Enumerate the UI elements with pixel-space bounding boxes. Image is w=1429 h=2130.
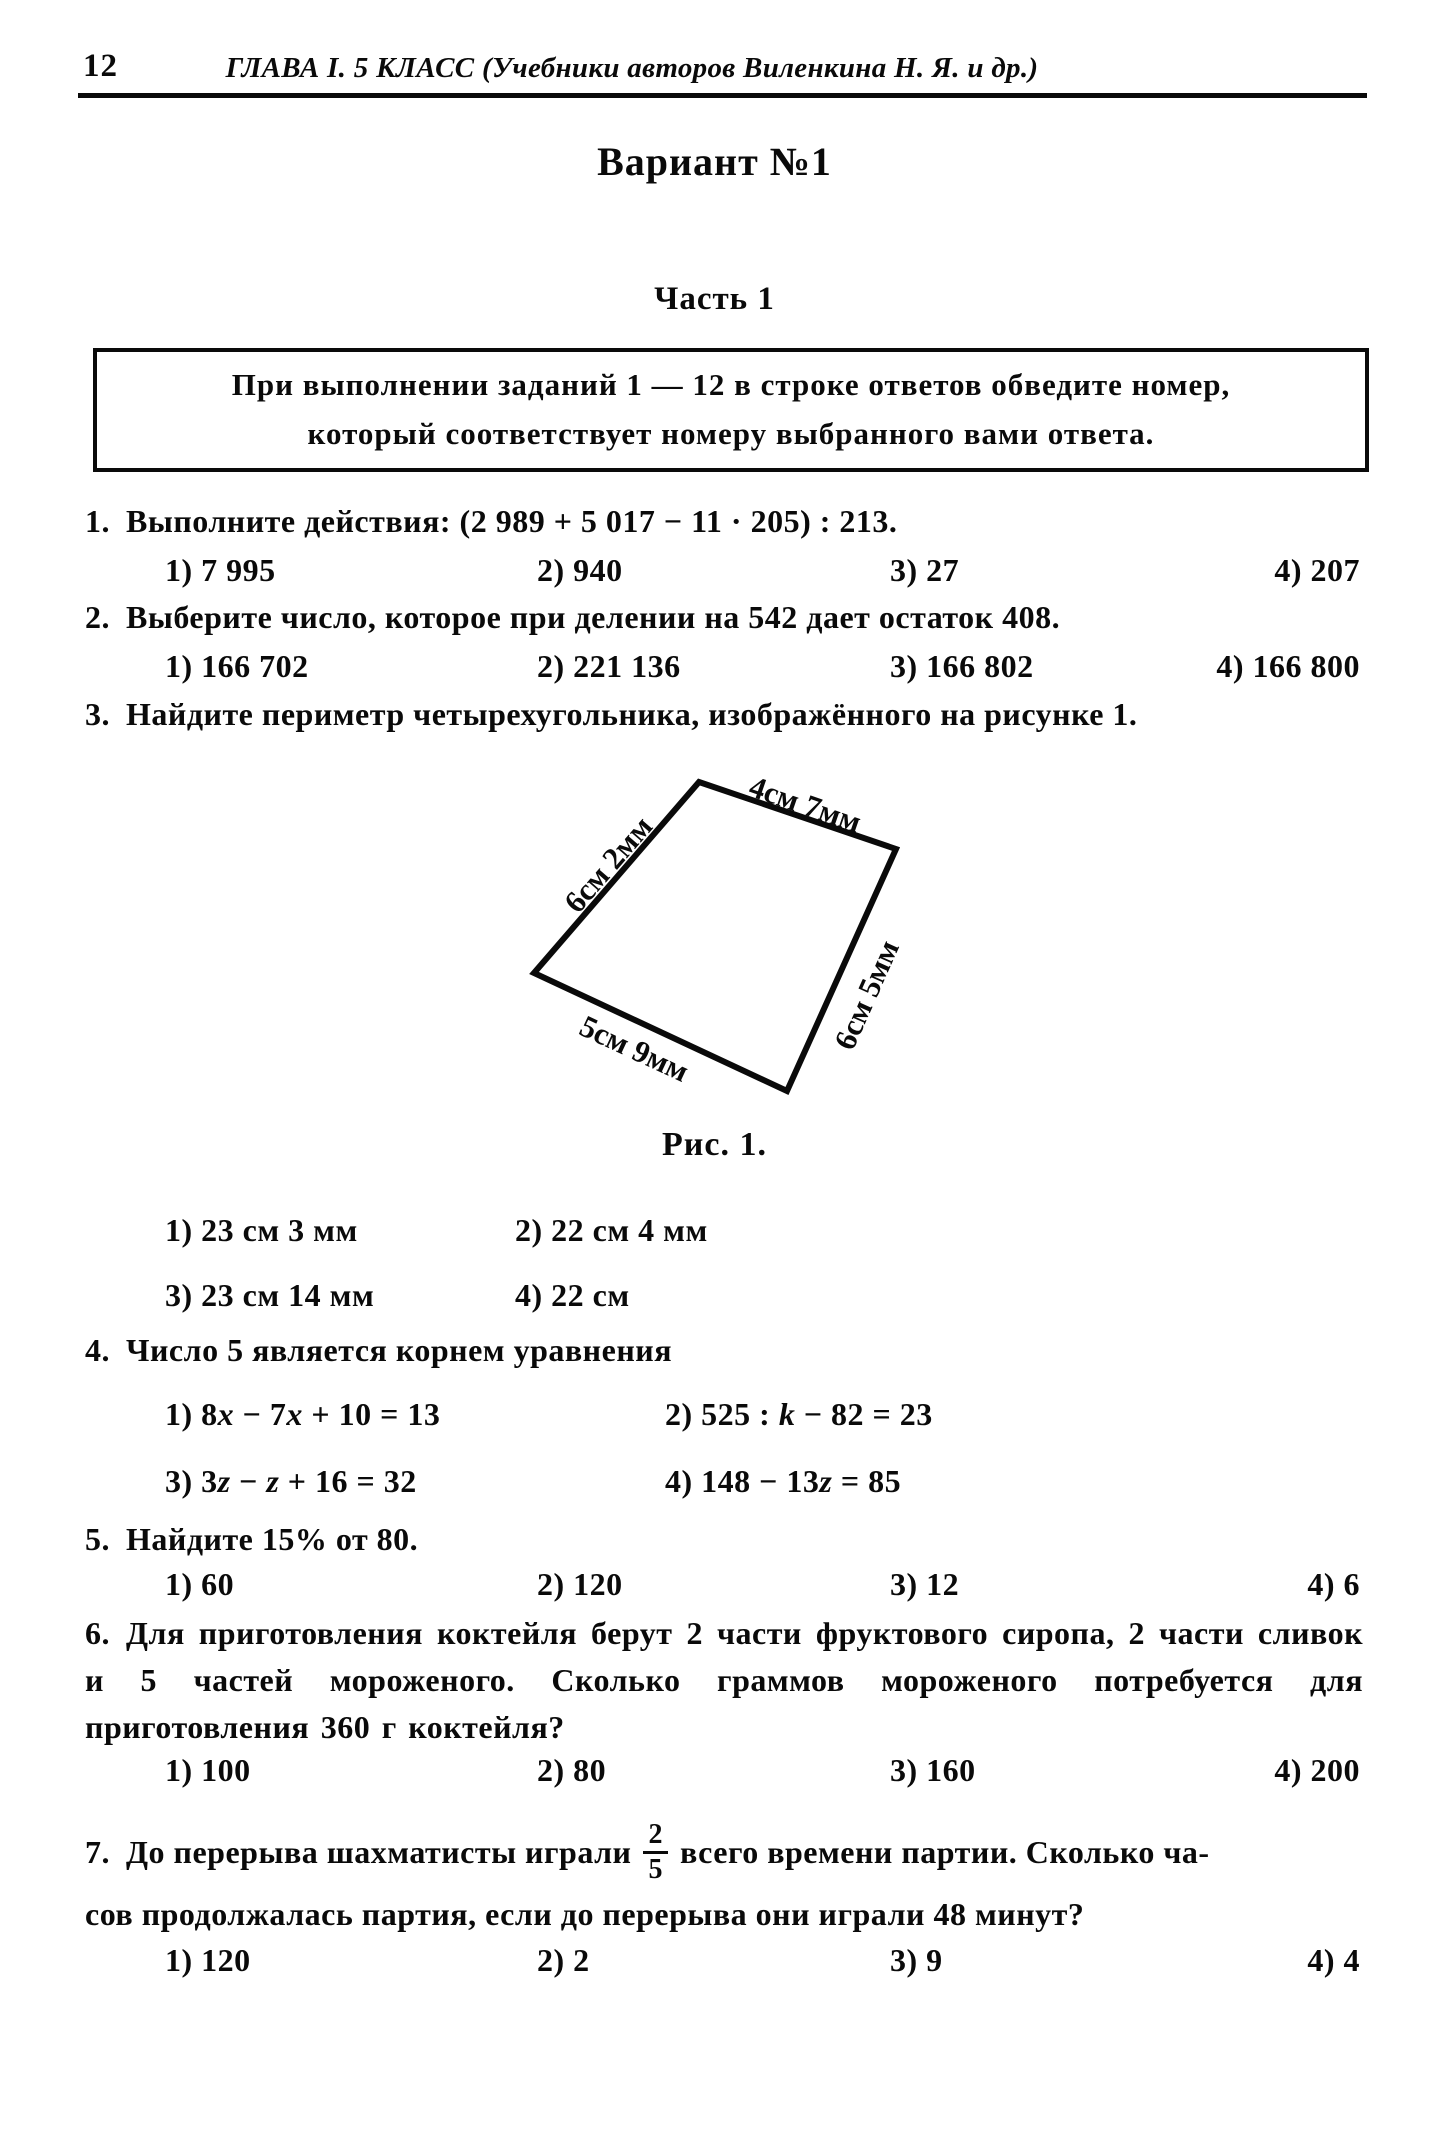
question-5-number: 5. [85, 1521, 110, 1558]
figure-caption: Рис. 1. [0, 1126, 1429, 1164]
answer-option: 3) 9 [890, 1942, 1205, 1979]
instruction-line-1: При выполнении заданий 1 — 12 в строке о… [103, 360, 1359, 409]
answer-option: 2) 221 136 [537, 648, 890, 685]
question-2: 2.Выберите число, которое при делении на… [85, 599, 1369, 636]
figure-quadrilateral: 6см 2мм 4см 7мм 6см 5мм 5см 9мм [430, 726, 1050, 1121]
question-4-text: Число 5 является корнем уравнения [126, 1332, 672, 1368]
answer-option: 4) 4 [1307, 1942, 1360, 1979]
question-5-text: Найдите 15% от 80. [126, 1521, 418, 1557]
question-1: 1.Выполните действия: (2 989 + 5 017 − 1… [85, 503, 1369, 540]
question-2-text: Выберите число, которое при делении на 5… [126, 599, 1060, 635]
question-5-answers: 1) 60 2) 120 3) 12 4) 6 [85, 1566, 1360, 1603]
question-1-answers: 1) 7 995 2) 940 3) 27 4) 207 [85, 552, 1360, 589]
answer-equation: 2) 525 : k − 82 = 23 [665, 1396, 1360, 1433]
answer-option: 2) 80 [537, 1752, 890, 1789]
answer-equation: 4) 148 − 13z = 85 [665, 1463, 1360, 1500]
question-2-number: 2. [85, 599, 110, 636]
question-1-text: Выполните действия: (2 989 + 5 017 − 11 … [126, 503, 897, 539]
question-6-number: 6. [85, 1610, 110, 1657]
answer-equation: 1) 8x − 7x + 10 = 13 [165, 1396, 665, 1433]
question-1-number: 1. [85, 503, 110, 540]
instruction-box: При выполнении заданий 1 — 12 в строке о… [93, 348, 1369, 472]
answer-option: 3) 27 [890, 552, 1205, 589]
question-3-number: 3. [85, 696, 110, 733]
answer-option: 2) 120 [537, 1566, 890, 1603]
answer-option: 4) 6 [1307, 1566, 1360, 1603]
question-4-answers: 1) 8x − 7x + 10 = 13 2) 525 : k − 82 = 2… [85, 1396, 1360, 1500]
side-label-right: 6см 5мм [827, 935, 906, 1055]
answer-option: 1) 60 [165, 1566, 537, 1603]
question-7-text-pre: До перерыва шахматисты играли [126, 1834, 631, 1871]
question-7-text-line2: сов продолжалась партия, если до перерыв… [85, 1896, 1084, 1932]
question-7-text-post: всего времени партии. Сколько ча- [680, 1834, 1210, 1871]
quadrilateral-drawing: 6см 2мм 4см 7мм 6см 5мм 5см 9мм [430, 726, 1050, 1116]
question-6-text: Для приготовления коктейля берут 2 части… [85, 1615, 1363, 1745]
chapter-title: ГЛАВА I. 5 КЛАСС (Учебники авторов Вилен… [175, 52, 1089, 85]
answer-option: 1) 7 995 [165, 552, 537, 589]
answer-option: 4) 207 [1274, 552, 1360, 589]
question-4: 4.Число 5 является корнем уравнения [85, 1332, 1369, 1369]
question-7-line-2: сов продолжалась партия, если до перерыв… [85, 1896, 1369, 1933]
question-3-answers: 1) 23 см 3 мм 2) 22 см 4 мм 3) 23 см 14 … [85, 1212, 1360, 1314]
instruction-line-2: который соответствует номеру выбранного … [103, 409, 1359, 458]
answer-option: 4) 166 800 [1216, 648, 1360, 685]
page-number: 12 [83, 48, 118, 85]
answer-option: 2) 22 см 4 мм [515, 1212, 1360, 1249]
question-6: 6.Для приготовления коктейля берут 2 час… [85, 1610, 1363, 1751]
answer-option: 1) 23 см 3 мм [165, 1212, 515, 1249]
scanned-test-page: 12 ГЛАВА I. 5 КЛАСС (Учебники авторов Ви… [0, 0, 1429, 2130]
question-6-answers: 1) 100 2) 80 3) 160 4) 200 [85, 1752, 1360, 1789]
answer-option: 3) 23 см 14 мм [165, 1277, 515, 1314]
answer-option: 3) 160 [890, 1752, 1205, 1789]
question-7-line-1: 7.До перерыва шахматисты играли25всего в… [85, 1806, 1369, 1898]
fraction-denominator: 5 [643, 1851, 668, 1885]
answer-option: 2) 940 [537, 552, 890, 589]
answer-option: 2) 2 [537, 1942, 890, 1979]
fraction-two-fifths: 25 [643, 1819, 668, 1885]
fraction-numerator: 2 [643, 1819, 668, 1850]
answer-option: 4) 200 [1274, 1752, 1360, 1789]
answer-option: 3) 12 [890, 1566, 1205, 1603]
side-label-left: 6см 2мм [557, 809, 659, 919]
question-2-answers: 1) 166 702 2) 221 136 3) 166 802 4) 166 … [85, 648, 1360, 685]
answer-option: 3) 166 802 [890, 648, 1205, 685]
answer-option: 1) 120 [165, 1942, 537, 1979]
question-7-answers: 1) 120 2) 2 3) 9 4) 4 [85, 1942, 1360, 1979]
question-7-number: 7. [85, 1834, 110, 1871]
side-label-top: 4см 7мм [745, 769, 866, 840]
answer-option: 1) 166 702 [165, 648, 537, 685]
answer-option: 1) 100 [165, 1752, 537, 1789]
variant-title: Вариант №1 [0, 138, 1429, 185]
answer-equation: 3) 3z − z + 16 = 32 [165, 1463, 665, 1500]
part-title: Часть 1 [0, 281, 1429, 318]
question-5: 5.Найдите 15% от 80. [85, 1521, 1369, 1558]
question-4-number: 4. [85, 1332, 110, 1369]
answer-option: 4) 22 см [515, 1277, 1360, 1314]
header-rule [78, 93, 1367, 98]
